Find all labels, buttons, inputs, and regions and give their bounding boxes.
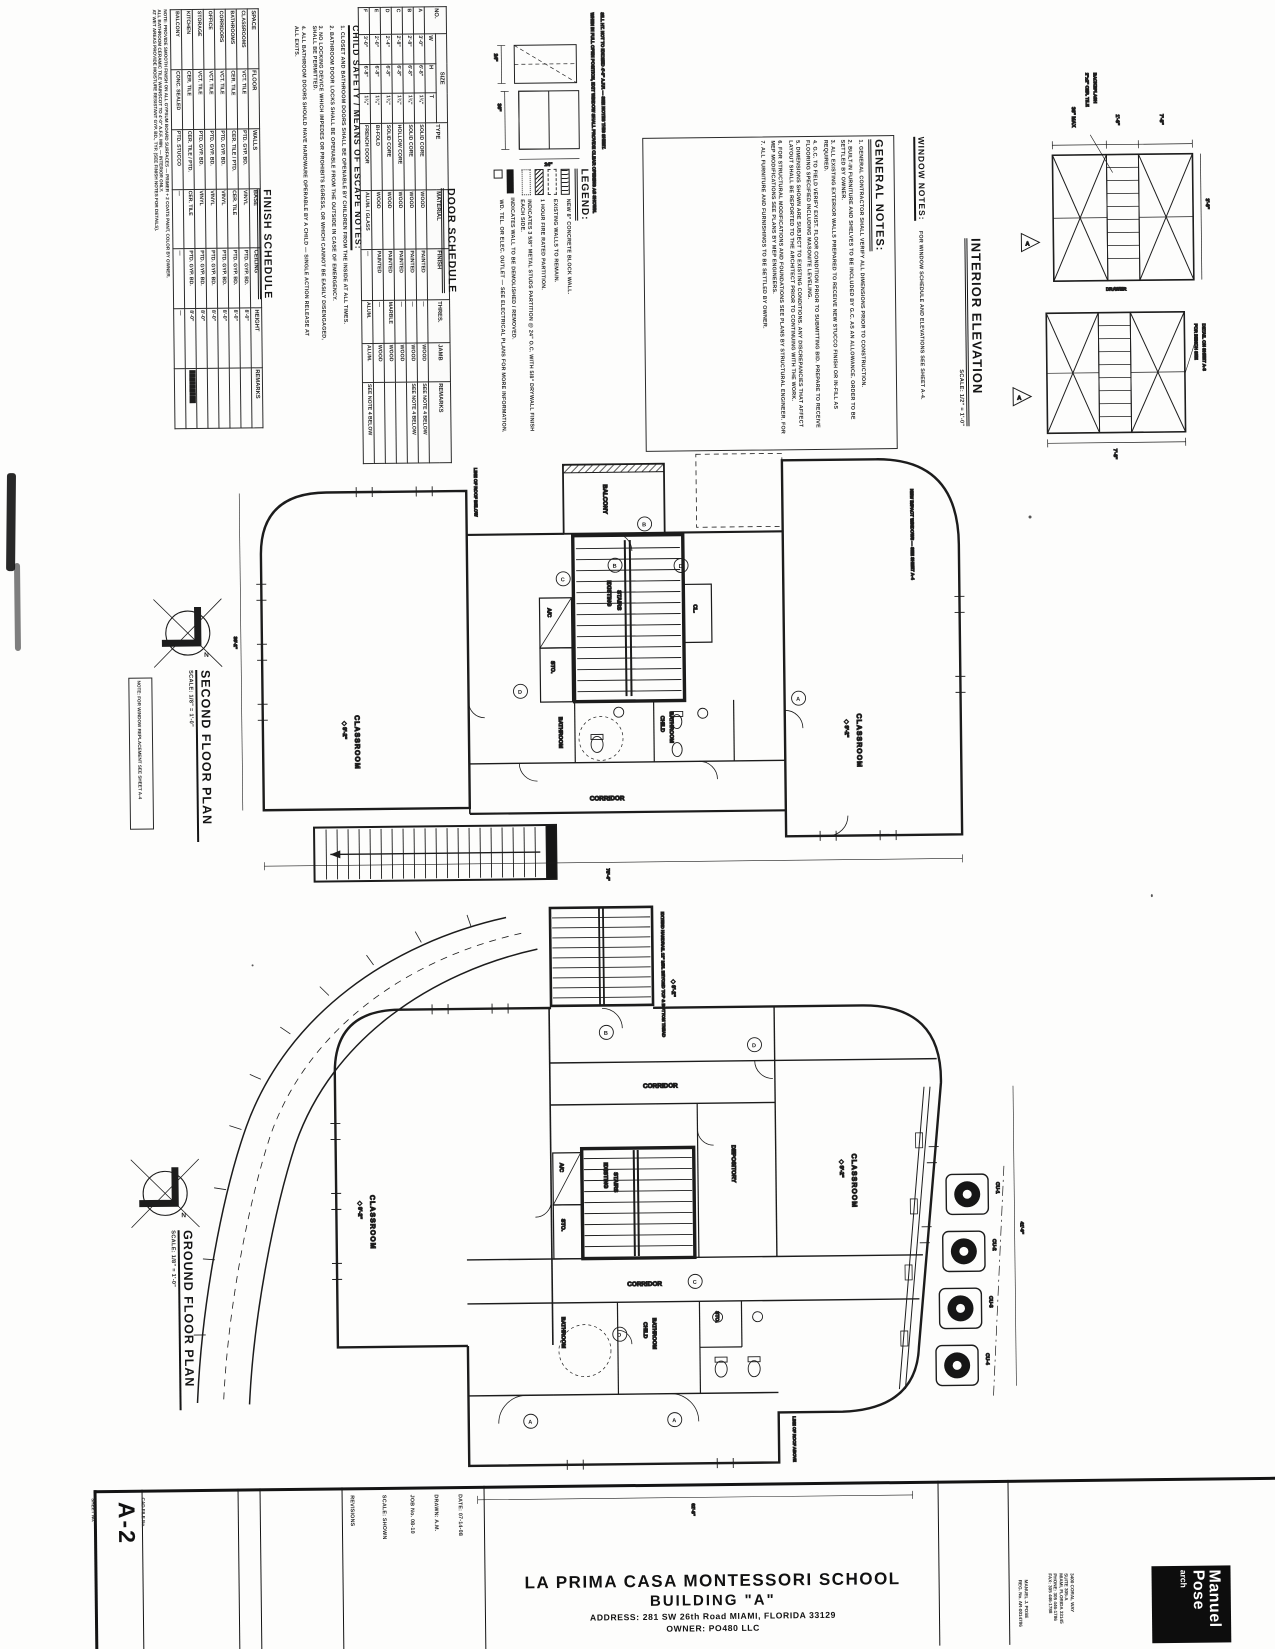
child-safety-items: 1. CLOSET AND BATHROOM DOORS SHALL BE OP…: [292, 25, 348, 341]
stair-elev-marker: ◆ 9'-2": [670, 979, 676, 998]
legend-label: EXISTING WALLS TO REMAIN.: [551, 199, 559, 283]
window-notes-body: FOR WINDOW SCHEDULE AND ELEVATIONS SEE S…: [917, 231, 925, 400]
table-cell: BATHROOMS: [225, 9, 237, 69]
table-cell: [218, 368, 230, 428]
finish-schedule-title-text: FINISH SCHEDULE: [257, 189, 274, 299]
door-col-type: TYPE: [426, 123, 449, 190]
table-cell: VCT. TILE: [204, 69, 216, 129]
general-notes: GENERAL NOTES: 1. GENERAL CONTRACTOR SHA…: [648, 139, 891, 446]
door-tag: B: [604, 1031, 608, 1037]
table-cell: VCT. TILE: [237, 69, 249, 129]
scan-speck: [1029, 516, 1032, 519]
door-schedule-title-text: DOOR SCHEDULE: [441, 188, 458, 293]
ground-stairs-label-1: EXISTING: [602, 1162, 608, 1188]
table-cell: 1¾": [381, 94, 392, 124]
door-col-h: H: [425, 63, 436, 93]
table-header-cell: REMARKS: [251, 368, 263, 428]
door-col-remarks: REMARKS: [428, 382, 451, 463]
ground-child-bath-2: BATHROOM: [651, 1318, 657, 1350]
elev-drawer-label: DRAWER: [1106, 286, 1127, 291]
note-item: 4. ALL BATHROOM DOORS SHOULD HAVE HARDWA…: [292, 26, 309, 341]
sheet-number-text: A-2: [114, 1502, 140, 1545]
note-item: 3. ALL EXISTING EXTERIOR WALLS PREPARED …: [821, 140, 838, 438]
classroom-right-label: CLASSROOM: [855, 713, 863, 768]
table-cell: [373, 382, 385, 463]
table-cell: WOOD: [373, 343, 384, 382]
interior-elevation-title: INTERIOR ELEVATION SCALE: 1/2" = 1'-0": [945, 238, 985, 426]
ground-dim-bottom: 62'-8": [691, 1503, 696, 1516]
door-tag: D: [518, 690, 522, 696]
table-cell: CORRIDORS: [214, 9, 226, 69]
scanned-drawing-sheet: 24" 36" 24" WHEN IN FULL OPEN POSITION, …: [0, 0, 1275, 1649]
table-cell: WOOD: [382, 190, 394, 249]
second-anno-2: LINE OF ROOF BELOW: [473, 468, 479, 518]
interior-elevation-title-text: INTERIOR ELEVATION: [964, 238, 985, 426]
sheet-content: 24" 36" 24" WHEN IN FULL OPEN POSITION, …: [0, 0, 1275, 1649]
door-col-jamb: JAMB: [428, 343, 450, 382]
table-cell: [384, 382, 396, 463]
table-cell: WOOD: [395, 343, 406, 382]
table-cell: 2'-4": [381, 34, 392, 64]
field-drawn: DRAWN: A.M.: [436, 1494, 449, 1624]
cu-label: CU-1: [994, 1182, 1000, 1194]
table-cell: CER. TILE: [226, 69, 238, 129]
table-cell: ALUM.: [362, 300, 373, 343]
table-cell: 8'-0": [185, 309, 197, 369]
sto-label: STO.: [549, 661, 555, 674]
note-item: 1. GENERAL CONTRACTOR SHALL VERIFY ALL D…: [856, 139, 866, 437]
table-cell: 2'-8": [392, 34, 403, 64]
legend-item: 1 HOUR FIRE RATED PARTITION.: [535, 169, 548, 437]
table-header-cell: FLOOR: [248, 69, 260, 129]
table-cell: ALUM.: [362, 343, 373, 382]
legend-item: INDICATES WALL TO BE DEMOLISHED / REMOVE…: [507, 169, 518, 437]
table-cell: PTD. GYP. BD.: [206, 249, 218, 309]
sheet-no-label: SHEET No.: [96, 1498, 106, 1568]
legend-label: WD. TEL. OR ELEC. OUTLET — SEE ELECTRICA…: [498, 199, 507, 432]
note-item: 3. NO LOCKING DEVICE WHICH IMPEDES OR PR…: [310, 26, 327, 341]
table-cell: 3'-0": [359, 34, 370, 64]
depository-label: DEPOSITORY: [730, 1145, 736, 1183]
sheet-number: A-2: [106, 1502, 141, 1622]
table-cell: 3'-0": [414, 34, 425, 64]
cu-label: CU-2: [991, 1239, 997, 1251]
table-cell: WOOD: [404, 190, 416, 249]
elev-dim-side: 3'-0": [1204, 198, 1210, 209]
stairs-label-2: STAIRS: [615, 590, 621, 610]
table-cell: WOOD: [384, 343, 395, 382]
second-anno-1: NEW IMPACT WINDOWS — SEE SHEET A-4: [909, 489, 915, 581]
ground-corridor-top: CORRIDOR: [643, 1083, 678, 1090]
note-item: MIAMI, FLORIDA 33145: [1058, 1573, 1064, 1643]
table-cell: BALCONY: [170, 10, 182, 70]
table-cell: VINYL: [205, 189, 217, 249]
door-tag: D: [679, 564, 683, 570]
door-col-size: SIZE: [436, 34, 448, 123]
table-cell: 1¾": [370, 94, 381, 124]
corridor-label: CORRIDOR: [590, 795, 625, 802]
second-floor-note: NOTE: FOR WINDOW REPLACEMENT SEE SHEET A…: [128, 677, 154, 829]
table-cell: VCT. TILE: [215, 69, 227, 129]
firm-contact: 3400 CORAL WAYSUITE 305-AMIAMI, FLORIDA …: [1033, 1573, 1076, 1643]
second-floor-note-text: NOTE: FOR WINDOW REPLACEMENT SEE SHEET A…: [136, 681, 142, 800]
table-cell: 2'-0": [370, 34, 381, 64]
legend-label: 1 HOUR FIRE RATED PARTITION.: [538, 199, 546, 290]
north-arrow-ground: N: [131, 1159, 200, 1228]
table-cell: CLASSROOMS: [236, 9, 248, 69]
field-date-text: DATE: 07-14-08: [457, 1494, 463, 1536]
existing-wall-swatch: [548, 169, 557, 195]
table-cell: —: [361, 249, 373, 300]
note-item: 2. BUILT-IN FURNITURE AND SHELVES TO BE …: [839, 140, 856, 438]
ground-ac-label: A/C: [558, 1163, 564, 1172]
ground-anno-handrail: EXTEND HANDRAIL 12" MIN. BEYOND TOP & BO…: [660, 912, 666, 1038]
table-cell: 8'-0": [218, 308, 230, 368]
table-cell: HOLLOW CORE: [393, 123, 405, 190]
door-schedule-table: NO. SIZE TYPE MATERIAL FINISH THRES. JAM…: [358, 6, 452, 464]
ground-classroom-left: CLASSROOM: [368, 1195, 376, 1250]
egress-dim-24b: 24": [544, 162, 553, 168]
general-notes-title: GENERAL NOTES:: [868, 139, 885, 251]
table-cell: 1¾": [414, 93, 425, 123]
table-cell: WOOD: [393, 190, 405, 249]
ground-sto-label: STO.: [559, 1219, 565, 1232]
field-job-text: JOB No. 08-10: [409, 1495, 415, 1534]
table-cell: PTD. STUCCO: [172, 129, 184, 189]
project-title-block: LA PRIMA CASA MONTESSORI SCHOOL BUILDING…: [488, 1569, 937, 1636]
outlet-symbol: [494, 169, 503, 178]
ground-corridor-bottom: CORRIDOR: [627, 1281, 662, 1288]
table-cell: 6'-8": [381, 64, 392, 94]
cl-label: CL.: [692, 604, 698, 613]
door-tag: D: [617, 1333, 621, 1339]
table-cell: 1¾": [392, 93, 403, 123]
child-bath-label-1: CHILD: [659, 716, 665, 733]
note-item: FAX: 305 446-1788: [1047, 1573, 1053, 1643]
table-cell: —: [172, 189, 184, 249]
table-cell: CONC. SEALED: [171, 69, 183, 129]
cu-label: CU-4: [984, 1353, 990, 1365]
legend-label: INDICATES 3 5/8" METAL STUDS PARTITION @…: [518, 199, 534, 437]
door-col-w: W: [425, 34, 436, 64]
field-scale: SCALE: SHOWN: [384, 1495, 397, 1625]
firm-name-2: Pose: [1189, 1570, 1206, 1640]
classroom-left-label: CLASSROOM: [353, 715, 361, 770]
ground-sto2-label: STO.: [714, 1311, 720, 1323]
table-cell: SOLID CORE: [404, 123, 416, 190]
elev-marker-a1: A: [1025, 242, 1029, 248]
ground-classroom-right-elev: ◆ 9'-2": [838, 1159, 845, 1178]
stairs-label-1: EXISTING: [605, 580, 611, 606]
table-cell: CER. TILE / PTD.: [183, 129, 195, 189]
table-cell: [207, 368, 219, 428]
table-cell: 6'-8": [414, 64, 425, 94]
door-tag: D: [752, 1043, 756, 1049]
interior-elevation-2: 7'-8" FOR BENCH SEE DETAIL ON SHEET A-3 …: [1012, 312, 1208, 462]
table-cell: BI-FOLD: [371, 123, 383, 190]
table-cell: B: [402, 7, 413, 34]
table-cell: 1¾": [403, 93, 414, 123]
note-item: 6. FOR STRUCTURAL MODIFICATIONS AND FOUN…: [769, 140, 786, 438]
table-cell: [196, 368, 208, 428]
note-item: 4. G.C. TO FIELD VERIFY EXIST. FLOOR CON…: [804, 140, 821, 438]
table-cell: CER. TILE: [183, 189, 195, 249]
second-floor-plan: BALCONY EXISTING STAIRS A/C STO. CL.: [231, 451, 968, 885]
table-cell: 2'-8": [403, 34, 414, 64]
child-safety-notes: CHILD SAFETY / MEANS OF ESCAPE NOTES: 1.…: [286, 25, 370, 341]
legend-item: INDICATES 3 5/8" METAL STUDS PARTITION @…: [518, 169, 535, 437]
table-header-cell: HEIGHT: [251, 308, 263, 368]
balcony-label: BALCONY: [601, 484, 607, 514]
table-cell: 8'-0": [196, 309, 208, 369]
table-cell: [240, 368, 252, 428]
door-col-t: T: [425, 93, 436, 123]
firm-license: MANUEL J. POSE REG. No. AR-0014786: [1015, 1580, 1030, 1642]
ac-label: A/C: [546, 608, 552, 617]
table-cell: 6'-8": [392, 64, 403, 94]
table-cell: PAINTED: [416, 249, 428, 300]
child-bath-label-2: BATHROOM: [668, 712, 674, 744]
door-tag: C: [693, 1280, 697, 1286]
table-cell: PTD. GYP. BD.: [195, 249, 207, 309]
field-revisions-text: REVISIONS: [349, 1495, 355, 1526]
table-cell: KITCHEN: [181, 9, 193, 69]
north-label: N: [204, 652, 209, 659]
table-cell: VINYL: [194, 189, 206, 249]
table-cell: 6'-8": [370, 64, 381, 94]
finish-schedule-table: SPACEFLOORWALLSBASECEILINGHEIGHTREMARKS …: [170, 8, 264, 429]
table-header-cell: WALLS: [249, 128, 261, 188]
table-cell: PTD. GYP. BD.: [239, 248, 251, 308]
table-cell: PTD. GYP. BD.: [216, 129, 228, 189]
door-col-no: NO.: [424, 7, 446, 34]
table-cell: SOLID CORE: [415, 123, 427, 190]
door-tag: A: [528, 1420, 532, 1426]
table-cell: PTD. GYP. BD.: [205, 129, 217, 189]
table-cell: PTD. GYP. BD.: [217, 248, 229, 308]
condensing-units: CU-1 CU-2 CU-3 CU-4: [934, 1174, 1002, 1386]
classroom-right-elev: ◆ 9'-2": [843, 719, 850, 738]
elev2-bench-note-2: DETAIL ON SHEET A-3: [1201, 324, 1207, 372]
egress-note-2: SILL HT. NOT TO EXCEED 4'-6" A.F.F. — SE…: [600, 12, 607, 149]
ground-child-bath-1: CHILD: [642, 1322, 648, 1339]
door-tag: A: [796, 697, 800, 703]
elev-marker-a2: A: [1017, 396, 1021, 402]
legend-label: NEW 8" CONCRETE BLOCK WALL.: [564, 199, 572, 295]
table-cell: SEE NOTE 4 BELOW: [417, 382, 429, 463]
demolish-wall-swatch: [507, 169, 514, 193]
door-tag: B: [642, 522, 646, 528]
ground-floor-title-text: GROUND FLOOR PLAN: [178, 1230, 197, 1410]
elev-backsplash-2: BACKSPLASH: [1093, 73, 1098, 104]
table-cell: VCT. TILE: [193, 69, 205, 129]
door-schedule: NO. SIZE TYPE MATERIAL FINISH THRES. JAM…: [363, 6, 452, 439]
table-cell: —: [395, 300, 406, 343]
elev-dim-7-8: 7'-8": [1158, 114, 1164, 125]
firm-license-name: MANUEL J. POSE: [1023, 1580, 1029, 1642]
legend-item: NEW 8" CONCRETE BLOCK WALL.: [561, 169, 574, 437]
table-cell: 6'-8": [403, 64, 414, 94]
second-floor-scale: SCALE: 1/8" = 1'-0": [187, 670, 195, 842]
interior-elevation-scale: SCALE: 1/2" = 1'-0": [956, 238, 964, 426]
legend: LEGEND: NEW 8" CONCRETE BLOCK WALL. EXIS…: [493, 168, 598, 437]
note-item: 1. CLOSET AND BATHROOM DOORS SHALL BE OP…: [338, 25, 348, 340]
table-cell: PAINTED: [383, 249, 395, 300]
cad-file-label: CAD FILE No.: [146, 1498, 156, 1568]
table-cell: C: [391, 7, 402, 34]
table-cell: CER. TILE: [182, 69, 194, 129]
table-cell: PTD. GYP. BD.: [194, 129, 206, 189]
north-label: N: [181, 1212, 186, 1219]
elev2-bench-note-1: FOR BENCH SEE: [1193, 324, 1198, 360]
table-cell: F: [358, 7, 369, 34]
finish-schedule: SPACEFLOORWALLSBASECEILINGHEIGHTREMARKS …: [141, 8, 264, 429]
cad-file-label-text: CAD FILE No.: [141, 1498, 146, 1528]
firm-logo-box: Manuel Pose arch: [1151, 1565, 1231, 1643]
table-cell: 8'-0": [240, 308, 252, 368]
table-cell: 8'-0": [229, 308, 241, 368]
elev2-dim-bottom: 7'-8": [1112, 449, 1118, 460]
ground-floor-scale: SCALE: 1/8" = 1'-0": [170, 1230, 178, 1410]
table-cell: SEE NOTE 4 BELOW: [406, 382, 418, 463]
ground-floor-plan: EXTEND HANDRAIL 12" MIN. BEYOND TOP & BO…: [189, 903, 1028, 1522]
elev-backsplash-1: 2"x2" CER. TILE: [1085, 73, 1090, 107]
table-cell: 8'-0": [207, 308, 219, 368]
table-cell: —: [373, 300, 384, 343]
fire-rated-swatch: [535, 169, 544, 195]
table-cell: A: [413, 7, 424, 34]
general-notes-items: 1. GENERAL CONTRACTOR SHALL VERIFY ALL D…: [758, 139, 866, 438]
note-item: 3400 CORAL WAY: [1069, 1573, 1075, 1643]
ground-floor-title: GROUND FLOOR PLAN SCALE: 1/8" = 1'-0": [163, 1230, 197, 1410]
table-cell: [174, 369, 186, 429]
legend-label: INDICATES WALL TO BE DEMOLISHED / REMOVE…: [509, 197, 517, 339]
field-revisions: REVISIONS: [352, 1495, 365, 1625]
second-floor-title: SECOND FLOOR PLAN SCALE: 1/8" = 1'-0": [180, 670, 214, 842]
second-dim-bottom: 78'-4": [605, 868, 610, 881]
field-job: JOB No. 08-10: [412, 1494, 425, 1624]
table-cell: PAINTED: [394, 249, 406, 300]
door-tag: B: [613, 564, 617, 570]
table-cell: PTD. GYP. BD.: [238, 129, 250, 189]
table-cell: ALUM. / GLASS: [360, 190, 372, 249]
sheet-no-label-text: SHEET No.: [91, 1498, 96, 1522]
second-dim-left: 36'-2": [233, 637, 238, 650]
table-cell: 6'-8": [359, 64, 370, 94]
finish-schedule-title: FINISH SCHEDULE: [261, 189, 278, 301]
field-scale-text: SCALE: SHOWN: [381, 1495, 388, 1540]
firm-contact-lines: 3400 CORAL WAYSUITE 305-AMIAMI, FLORIDA …: [1047, 1573, 1075, 1643]
table-cell: WOOD: [406, 343, 417, 382]
metal-stud-swatch: [522, 169, 531, 195]
table-cell: —: [417, 300, 428, 343]
table-cell: CER. TILE: [227, 189, 239, 249]
table-cell: PTD. GYP. BD.: [228, 248, 240, 308]
elev-dim-1-6: 1'-6": [1114, 114, 1120, 125]
scan-smudge: [6, 473, 16, 571]
table-cell: FRENCH DOOR: [360, 123, 372, 190]
firm-name-1: Manuel: [1205, 1569, 1222, 1639]
table-cell: CER. TILE / PTD.: [227, 129, 239, 189]
door-tag: C: [561, 577, 565, 583]
ground-stairs-label-2: STAIRS: [612, 1172, 618, 1192]
table-cell: STORAGE: [192, 9, 204, 69]
classroom-left-elev: ◆ 9'-2": [341, 720, 348, 739]
interior-elevation-1: 36" MAX 1'-6" 7'-8" 2"x2" CER. TILE BACK…: [1020, 71, 1211, 292]
egress-dim-24: 24": [492, 54, 498, 63]
scan-speck: [252, 964, 254, 966]
table-cell: █████████: [185, 369, 197, 429]
table-cell: WOOD: [371, 190, 383, 249]
bathroom-label: BATHROOM: [557, 717, 563, 749]
cu-label: CU-3: [987, 1296, 993, 1308]
note-item: 7. ALL FURNITURE AND FURNISHINGS TO BE S…: [758, 141, 768, 439]
table-cell: VINYL: [216, 189, 228, 249]
legend-item: EXISTING WALLS TO REMAIN.: [548, 169, 561, 437]
elev-dim-36max: 36" MAX: [1070, 107, 1076, 128]
table-cell: —: [406, 300, 417, 343]
field-drawn-text: DRAWN: A.M.: [433, 1494, 439, 1531]
second-floor-title-text: SECOND FLOOR PLAN: [195, 670, 214, 842]
field-date: DATE: 07-14-08: [460, 1494, 473, 1624]
table-cell: PAINTED: [372, 249, 384, 300]
table-cell: SEE NOTE 4 BELOW: [362, 382, 374, 463]
table-cell: E: [369, 7, 380, 34]
scan-speck: [1151, 894, 1153, 897]
legend-item: WD. TEL. OR ELEC. OUTLET — SEE ELECTRICA…: [494, 169, 507, 437]
table-header-cell: SPACE: [247, 9, 259, 69]
table-cell: PTD. GYP. BD.: [184, 249, 196, 309]
north-arrow-second: N: [153, 599, 222, 668]
table-cell: PAINTED: [405, 249, 417, 300]
scan-smudge: [14, 563, 21, 651]
table-cell: WOOD: [417, 343, 428, 382]
ground-classroom-right: CLASSROOM: [850, 1154, 858, 1209]
window-notes: WINDOW NOTES: FOR WINDOW SCHEDULE AND EL…: [897, 137, 934, 423]
ground-bathroom-label: BATHROOM: [560, 1317, 566, 1349]
new-block-wall-swatch: [561, 169, 570, 195]
table-cell: [229, 368, 241, 428]
ground-anno-roof: LINE OF ROOF ABOVE: [792, 1416, 798, 1462]
ground-dim-right: 41'-0": [1020, 1222, 1025, 1235]
table-cell: SOLID CORE: [382, 123, 394, 190]
door-tag: A: [672, 1418, 676, 1424]
note-item: 2. BATHROOM DOOR LOCKS SHALL BE OPENABLE…: [327, 25, 337, 340]
table-cell: 1¾": [359, 94, 370, 124]
window-notes-title: WINDOW NOTES:: [913, 137, 927, 221]
table-cell: —: [174, 309, 186, 369]
door-schedule-title: DOOR SCHEDULE: [445, 188, 462, 314]
table-cell: VINYL: [238, 188, 250, 248]
table-cell: [395, 382, 407, 463]
table-cell: WOOD: [415, 190, 427, 249]
table-cell: —: [173, 249, 185, 309]
table-cell: OFFICE: [203, 9, 215, 69]
finish-schedule-notes: NOTE: PROVIDE SMOOTH FINISH ON ALL GYPSU…: [151, 9, 172, 429]
table-cell: D: [380, 7, 391, 34]
firm-name-3: arch: [1179, 1570, 1190, 1640]
note-item: 5. DIMENSIONS SHOWN ARE SUBJECT TO EXIST…: [786, 140, 803, 438]
ground-classroom-left-elev: ◆ 9'-2": [356, 1200, 363, 1219]
table-cell: MARBLE: [384, 300, 395, 343]
egress-dim-36: 36": [496, 103, 502, 112]
legend-title: LEGEND:: [575, 169, 591, 221]
